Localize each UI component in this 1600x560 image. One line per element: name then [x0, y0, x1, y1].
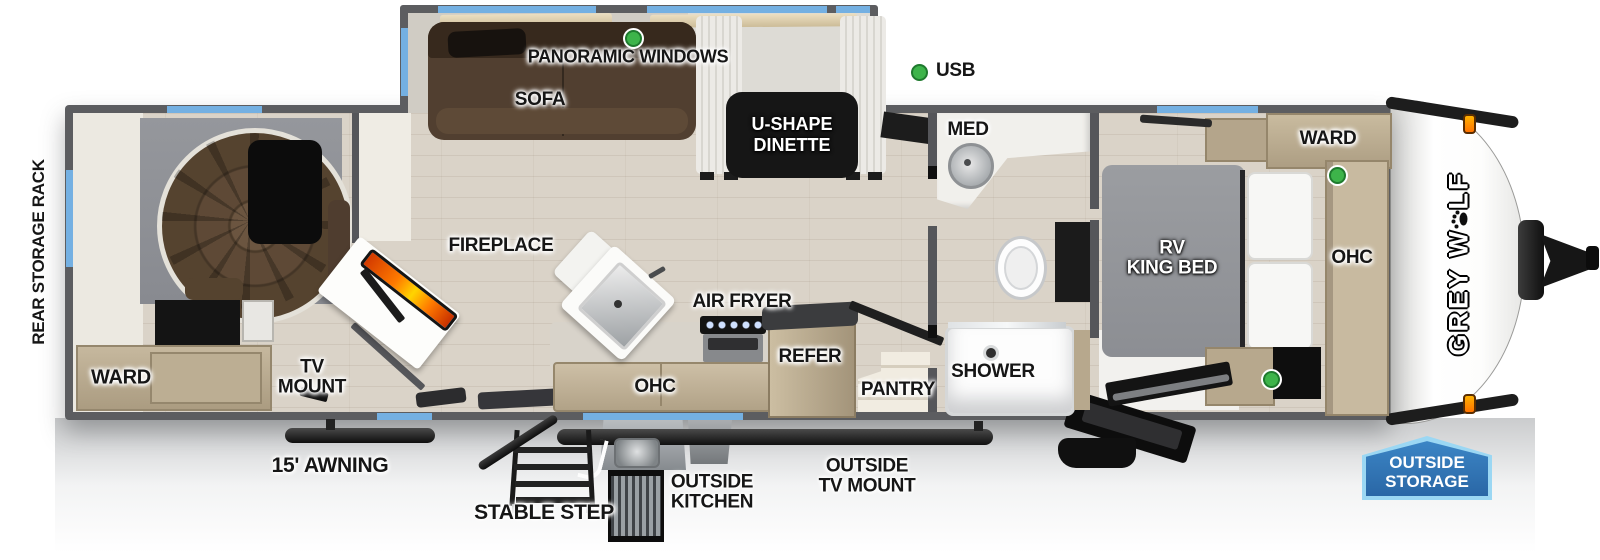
usb-dot-bed-head	[1329, 167, 1346, 184]
usb-legend-label: USB	[936, 61, 975, 81]
marker-light-bottom-icon	[1463, 394, 1476, 414]
pantry-label: PANTRY	[861, 380, 935, 400]
tv-mount-label: TV MOUNT	[278, 357, 346, 397]
panoramic-windows-label: PANORAMIC WINDOWS	[528, 48, 729, 67]
dinette-label-line1: U-SHAPE	[751, 114, 832, 135]
bath-linen-cabinet	[1055, 222, 1095, 302]
hitch-jack	[1518, 220, 1544, 300]
dinette-label-line2: DINETTE	[753, 135, 830, 156]
outside-kitchen-line2: KITCHEN	[671, 492, 753, 512]
bath-wall-left-a	[928, 113, 937, 173]
usb-dot-legend	[911, 64, 928, 81]
window-rear-top	[167, 106, 262, 113]
window-rear-left-wall	[66, 170, 73, 267]
king-bed-line1: RV	[1127, 238, 1218, 258]
window-bottom-2	[583, 413, 743, 420]
rear-seat-small	[185, 278, 243, 300]
kitchen-ohc-label: OHC	[634, 377, 675, 397]
med-label: MED	[947, 120, 988, 140]
med-sink-icon	[948, 143, 994, 189]
tv-mount-line1: TV	[278, 357, 346, 377]
brand-logo: GREY WLF	[1444, 170, 1475, 355]
sofa-label: SOFA	[515, 90, 566, 110]
marker-light-top-icon	[1463, 114, 1476, 134]
dinette-bench-foot-4	[868, 172, 882, 180]
brand-w: W	[1444, 228, 1474, 256]
brand-grey: GREY	[1444, 267, 1474, 355]
outside-tv-bracket	[974, 421, 983, 431]
hitch-coupler	[1586, 246, 1599, 270]
bath-wall-right-a	[1090, 113, 1099, 209]
king-bed-label: RV KING BED	[1127, 238, 1218, 278]
bedroom-tv	[1273, 347, 1321, 399]
outside-storage-line2: STORAGE	[1385, 473, 1469, 492]
divider-wall-band	[359, 113, 411, 241]
bath-side-cabinet	[1074, 330, 1090, 410]
shower-glass	[948, 322, 1066, 328]
bath-wall-left-nub-b	[928, 325, 937, 338]
bath-wall-left-nub-a	[928, 166, 937, 179]
rear-ward-label: WARD	[91, 368, 151, 389]
usb-dot-bed-foot	[1263, 371, 1280, 388]
rear-ward-panel	[150, 352, 262, 404]
outside-tv-line1: OUTSIDE	[819, 456, 916, 476]
window-slideout-top-2	[647, 6, 827, 13]
med-sink-drain	[964, 159, 971, 166]
window-slideout-top-1	[438, 6, 596, 13]
divider-wall-edge	[352, 113, 359, 243]
stable-step-label: STABLE STEP	[474, 502, 614, 524]
dinette-table: U-SHAPE DINETTE	[726, 92, 858, 178]
hitch-tongue	[1540, 234, 1592, 288]
front-ward-label: WARD	[1300, 129, 1357, 149]
refer-box	[768, 318, 856, 418]
bed-pillow-top	[1247, 172, 1313, 260]
toilet-seat	[1004, 246, 1038, 290]
bath-wall-left-b	[928, 226, 937, 332]
sofa-front-cushion	[436, 108, 688, 134]
outside-storage-line1: OUTSIDE	[1389, 454, 1465, 473]
king-bed-line2: KING BED	[1127, 258, 1218, 278]
refer-label: REFER	[779, 347, 842, 367]
range-oven-drawer	[708, 338, 758, 350]
window-slideout-top-3	[836, 6, 870, 13]
front-ward-shelf	[1205, 118, 1271, 162]
outside-griddle	[608, 470, 664, 542]
front-ohc-label: OHC	[1331, 248, 1372, 268]
window-slideout-left	[401, 28, 408, 96]
entry-steps-base	[1058, 438, 1136, 468]
sofa-pillow	[447, 28, 526, 58]
window-bottom-1	[377, 413, 432, 420]
awning-roller	[285, 428, 435, 443]
rear-cabinet-door	[242, 300, 274, 342]
tv-mount-line2: MOUNT	[278, 377, 346, 397]
brand-lf: LF	[1444, 170, 1474, 209]
floorplan: GREY WLF U-SHAPE DINETTE	[0, 0, 1600, 560]
shower-label: SHOWER	[951, 362, 1035, 382]
outside-kitchen-line1: OUTSIDE	[671, 472, 753, 492]
outside-kitchen-label: OUTSIDE KITCHEN	[671, 472, 753, 512]
outside-kitchen-basin	[614, 438, 660, 468]
paw-icon	[1452, 209, 1469, 228]
rear-cabinet-black	[155, 300, 240, 345]
rear-storage-rack-label: REAR STORAGE RACK	[30, 159, 48, 344]
kitchen-sink-drain	[614, 300, 622, 308]
bed-head-divider	[1240, 170, 1245, 350]
stable-step-rung-2	[514, 464, 590, 470]
range-burners-icon	[704, 320, 762, 330]
dinette-bench-foot-1	[700, 172, 714, 180]
bed-pillow-bottom	[1247, 262, 1313, 350]
outside-tv-mount-label: OUTSIDE TV MOUNT	[819, 456, 916, 496]
window-bedroom-top	[1157, 106, 1258, 113]
outside-tv-line2: TV MOUNT	[819, 476, 916, 496]
shower-drain-icon	[986, 348, 996, 358]
awning-label: 15' AWNING	[272, 455, 389, 477]
fireplace-label: FIREPLACE	[449, 236, 554, 256]
front-ohc-cabinet	[1325, 160, 1389, 416]
usb-dot-sofa	[625, 30, 642, 47]
rear-tv-panel	[248, 140, 322, 244]
bath-wall-right-b	[1090, 220, 1099, 338]
air-fryer-label: AIR FRYER	[693, 292, 792, 312]
stable-step-rung-3	[515, 481, 590, 487]
awning-bracket	[326, 419, 335, 430]
stable-step-rung-1	[514, 447, 590, 453]
